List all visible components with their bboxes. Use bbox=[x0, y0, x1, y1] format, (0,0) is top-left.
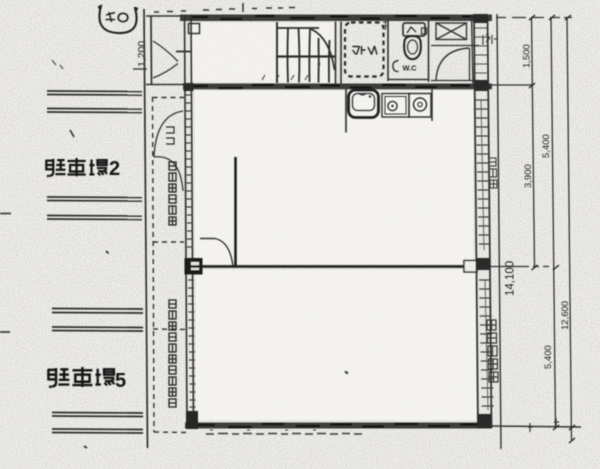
svg-text:3,900: 3,900 bbox=[523, 164, 534, 188]
svg-text:1,500: 1,500 bbox=[522, 44, 533, 68]
svg-text:1,200: 1,200 bbox=[136, 41, 148, 67]
svg-text:12,600: 12,600 bbox=[560, 301, 571, 330]
svg-text:W.C: W.C bbox=[403, 64, 418, 73]
svg-text:5,400: 5,400 bbox=[543, 345, 554, 369]
svg-text:2: 2 bbox=[109, 158, 120, 180]
svg-text:14,100: 14,100 bbox=[505, 261, 517, 296]
svg-text:5: 5 bbox=[115, 370, 126, 392]
svg-text:5,400: 5,400 bbox=[541, 134, 552, 158]
